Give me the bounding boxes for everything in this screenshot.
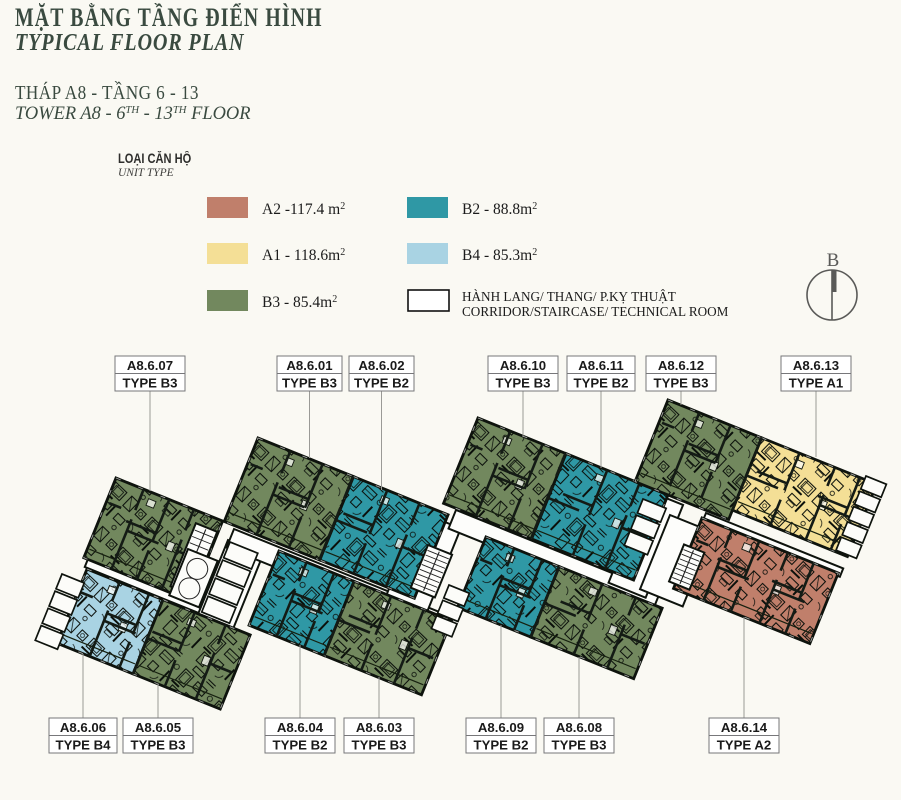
svg-text:TYPE B2: TYPE B2 [354, 376, 409, 391]
svg-text:B: B [827, 250, 840, 271]
svg-text:TYPE B3: TYPE B3 [496, 376, 551, 391]
svg-text:A1 - 118.6m2: A1 - 118.6m2 [262, 247, 345, 264]
svg-text:A8.6.07: A8.6.07 [127, 358, 173, 373]
svg-text:TYPE B3: TYPE B3 [123, 376, 178, 391]
svg-text:A8.6.02: A8.6.02 [358, 358, 404, 373]
svg-text:A8.6.04: A8.6.04 [277, 720, 324, 735]
svg-text:A2 -117.4 m2: A2 -117.4 m2 [262, 201, 345, 218]
svg-text:B2 - 88.8m2: B2 - 88.8m2 [462, 201, 537, 218]
svg-text:HÀNH LANG/ THANG/ P.KỴ THUẬT: HÀNH LANG/ THANG/ P.KỴ THUẬT [462, 289, 676, 304]
svg-text:TYPE B3: TYPE B3 [282, 376, 337, 391]
svg-text:A8.6.10: A8.6.10 [500, 358, 546, 373]
svg-text:A8.6.01: A8.6.01 [286, 358, 332, 373]
svg-text:TYPE B3: TYPE B3 [131, 738, 186, 753]
svg-text:A8.6.11: A8.6.11 [578, 358, 623, 373]
svg-text:A8.6.06: A8.6.06 [60, 720, 106, 735]
svg-text:TYPE B3: TYPE B3 [552, 738, 607, 753]
svg-text:TYPE B3: TYPE B3 [352, 738, 407, 753]
svg-text:TYPE A1: TYPE A1 [789, 376, 843, 391]
svg-text:CORRIDOR/STAIRCASE/ TECHNICAL: CORRIDOR/STAIRCASE/ TECHNICAL ROOM [462, 304, 729, 319]
svg-text:TYPE B2: TYPE B2 [574, 376, 629, 391]
svg-text:TYPE B2: TYPE B2 [273, 738, 328, 753]
svg-text:TYPE B4: TYPE B4 [56, 738, 112, 753]
svg-text:TYPE B2: TYPE B2 [474, 738, 529, 753]
svg-text:TYPE B3: TYPE B3 [654, 376, 709, 391]
svg-text:B3 - 85.4m2: B3 - 85.4m2 [262, 294, 337, 311]
svg-text:A8.6.14: A8.6.14 [721, 720, 768, 735]
svg-text:A8.6.03: A8.6.03 [356, 720, 402, 735]
svg-text:A8.6.12: A8.6.12 [658, 358, 704, 373]
svg-text:A8.6.08: A8.6.08 [556, 720, 602, 735]
svg-text:A8.6.13: A8.6.13 [793, 358, 839, 373]
svg-text:A8.6.05: A8.6.05 [135, 720, 181, 735]
svg-text:B4 - 85.3m2: B4 - 85.3m2 [462, 247, 537, 264]
svg-text:TYPE A2: TYPE A2 [717, 738, 771, 753]
svg-text:A8.6.09: A8.6.09 [478, 720, 524, 735]
